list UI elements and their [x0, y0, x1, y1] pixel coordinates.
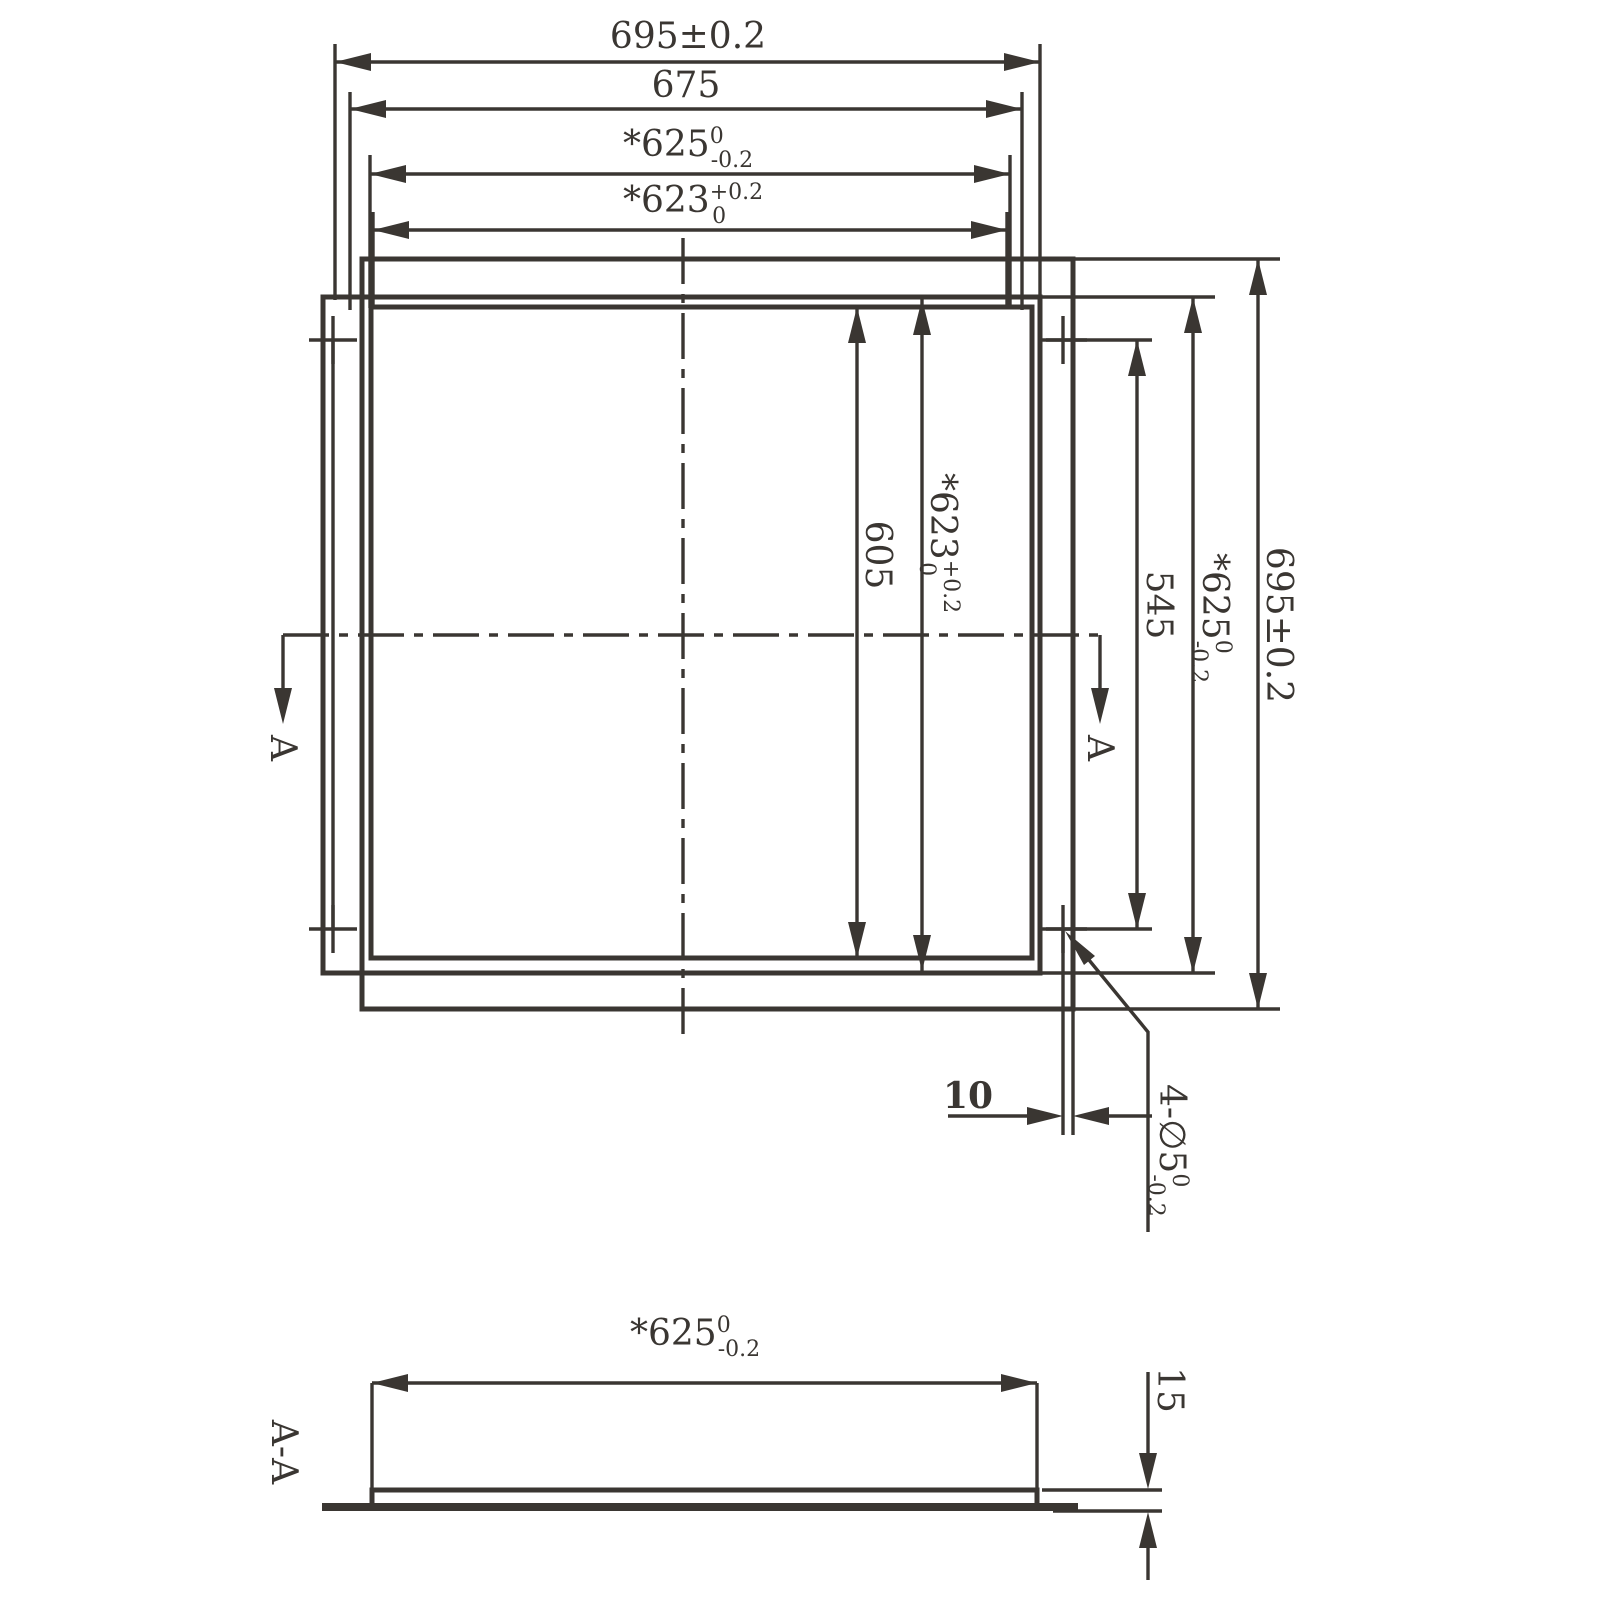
arrowhead	[370, 165, 406, 183]
arrowhead	[1128, 893, 1146, 929]
arrowhead	[1001, 1374, 1037, 1392]
section-arrow-a-left: A	[262, 635, 303, 762]
holes-callout-label: 4-∅50-0.2	[1143, 1084, 1192, 1217]
dim-label: *6250-0.2	[630, 1313, 760, 1362]
arrowhead	[1091, 688, 1109, 724]
arrowhead	[1073, 1107, 1109, 1125]
arrowhead	[1139, 1453, 1157, 1489]
drawing-sheet: 695±0.2 675 *6250-0.2 *623+0.20	[0, 0, 1600, 1600]
arrowhead	[350, 100, 386, 118]
arrowhead	[1184, 297, 1202, 333]
section-arrow-a-right: A	[1079, 635, 1120, 762]
arrowhead	[1249, 259, 1267, 295]
arrowhead	[971, 221, 1007, 239]
dim-label: *6250-0.2	[623, 124, 753, 173]
arrowhead	[1249, 973, 1267, 1009]
arrowhead	[1128, 340, 1146, 376]
arrowhead	[372, 1374, 408, 1392]
dim-label: 695±0.2	[1258, 547, 1299, 703]
dim-label: 675	[652, 65, 721, 106]
arrowhead	[373, 221, 409, 239]
dim-label: 15	[1149, 1367, 1190, 1413]
arrowhead	[848, 307, 866, 343]
arrowhead	[274, 688, 292, 724]
dim-height-605: 605	[848, 307, 898, 958]
section-dim-width-625: *6250-0.2	[372, 1313, 1037, 1490]
plan-view: 695±0.2 675 *6250-0.2 *623+0.20	[262, 16, 1299, 1232]
dim-width-623: *623+0.20	[373, 180, 1007, 306]
arrowhead	[1027, 1107, 1063, 1125]
arrowhead	[974, 165, 1010, 183]
panel-section-profile	[322, 1490, 1078, 1507]
arrowhead	[1139, 1512, 1157, 1548]
technical-drawing-canvas: 695±0.2 675 *6250-0.2 *623+0.20	[0, 0, 1600, 1600]
holes-callout-leader: 4-∅50-0.2	[1065, 931, 1192, 1232]
section-title: A-A	[263, 1419, 304, 1485]
arrowhead	[848, 922, 866, 958]
dim-label: 695±0.2	[610, 16, 766, 57]
section-marker-label: A	[262, 734, 303, 762]
dim-label: 605	[857, 521, 898, 590]
arrowhead	[913, 935, 931, 971]
dim-height-623: *623+0.20	[913, 299, 963, 971]
section-dim-height-15: 15	[1042, 1367, 1190, 1580]
arrowhead	[1184, 937, 1202, 973]
dim-label: *623+0.20	[623, 180, 763, 229]
section-marker-label: A	[1079, 734, 1120, 762]
section-view: A-A *6250-0.2 15	[263, 1313, 1190, 1580]
dim-label: 10	[943, 1075, 993, 1117]
arrowhead	[1004, 53, 1040, 71]
inner-opening-square	[371, 307, 1032, 958]
arrowhead	[913, 299, 931, 335]
arrowhead	[335, 53, 371, 71]
dim-label: 545	[1138, 571, 1179, 640]
arrowhead	[986, 100, 1022, 118]
dim-overall-height-695: 695±0.2	[1073, 259, 1299, 1009]
